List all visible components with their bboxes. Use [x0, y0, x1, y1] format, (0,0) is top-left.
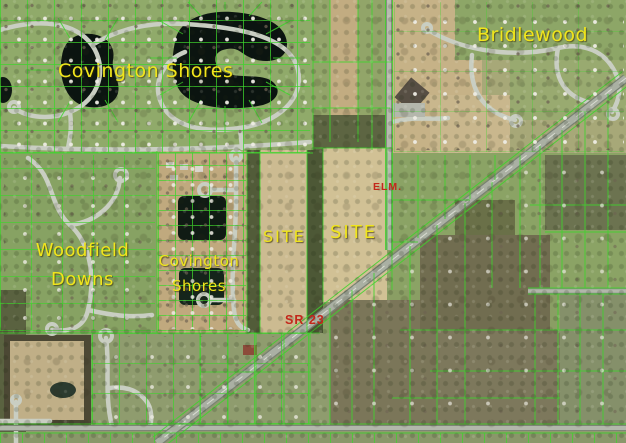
- label-covington-shores-north: Covington Shores: [58, 60, 233, 82]
- label-site-west: SITE: [263, 227, 306, 246]
- label-woodfield-downs-line2: Downs: [25, 265, 140, 294]
- label-sr-23: SR 23: [285, 313, 325, 327]
- label-elm-road: ELM.: [373, 181, 402, 193]
- label-covington-shores-south-line1: Covington: [155, 249, 243, 274]
- label-covington-shores-south: Covington Shores: [155, 249, 243, 299]
- aerial-parcel-map: Covington Shores Bridlewood Woodfield Do…: [0, 0, 626, 443]
- label-covington-shores-south-line2: Shores: [155, 274, 243, 299]
- label-woodfield-downs: Woodfield Downs: [25, 236, 140, 294]
- label-woodfield-downs-line1: Woodfield: [25, 236, 140, 265]
- label-site-east: SITE: [330, 222, 377, 243]
- label-bridlewood: Bridlewood: [477, 24, 588, 46]
